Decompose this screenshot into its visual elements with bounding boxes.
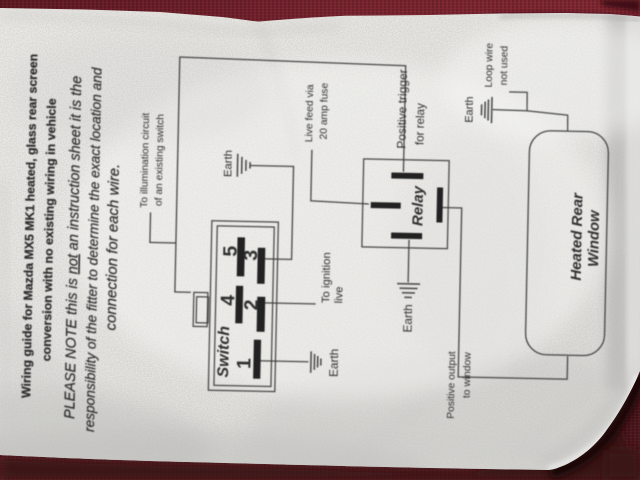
svg-text:for relay: for relay bbox=[414, 103, 428, 145]
svg-text:Earth: Earth bbox=[401, 304, 416, 332]
svg-text:Earth: Earth bbox=[463, 96, 476, 123]
svg-text:3: 3 bbox=[240, 249, 262, 260]
svg-text:To ignition: To ignition bbox=[320, 252, 333, 303]
svg-text:Live feed via: Live feed via bbox=[304, 84, 316, 142]
svg-text:Positive trigger: Positive trigger bbox=[394, 69, 410, 149]
svg-text:Loop wire: Loop wire bbox=[484, 42, 496, 87]
svg-text:to window: to window bbox=[462, 352, 474, 399]
svg-text:Earth: Earth bbox=[327, 349, 342, 377]
svg-text:Earth: Earth bbox=[222, 150, 235, 177]
svg-text:Window: Window bbox=[586, 209, 603, 267]
svg-text:2: 2 bbox=[240, 299, 262, 310]
svg-text:not used: not used bbox=[499, 45, 511, 85]
svg-text:of an existing switch: of an existing switch bbox=[154, 114, 167, 207]
svg-text:To illumination circuit: To illumination circuit bbox=[139, 113, 152, 208]
svg-text:5: 5 bbox=[220, 245, 242, 256]
svg-text:Switch: Switch bbox=[215, 326, 233, 378]
svg-text:Heated Rear: Heated Rear bbox=[568, 192, 587, 281]
svg-text:live: live bbox=[333, 286, 345, 303]
svg-text:4: 4 bbox=[217, 294, 239, 305]
svg-text:Relay: Relay bbox=[409, 185, 427, 226]
svg-text:Positive output: Positive output bbox=[446, 351, 458, 419]
svg-text:1: 1 bbox=[233, 358, 255, 369]
svg-text:20 amp fuse: 20 amp fuse bbox=[319, 83, 331, 140]
svg-text:connection for each wire.: connection for each wire. bbox=[103, 164, 123, 331]
